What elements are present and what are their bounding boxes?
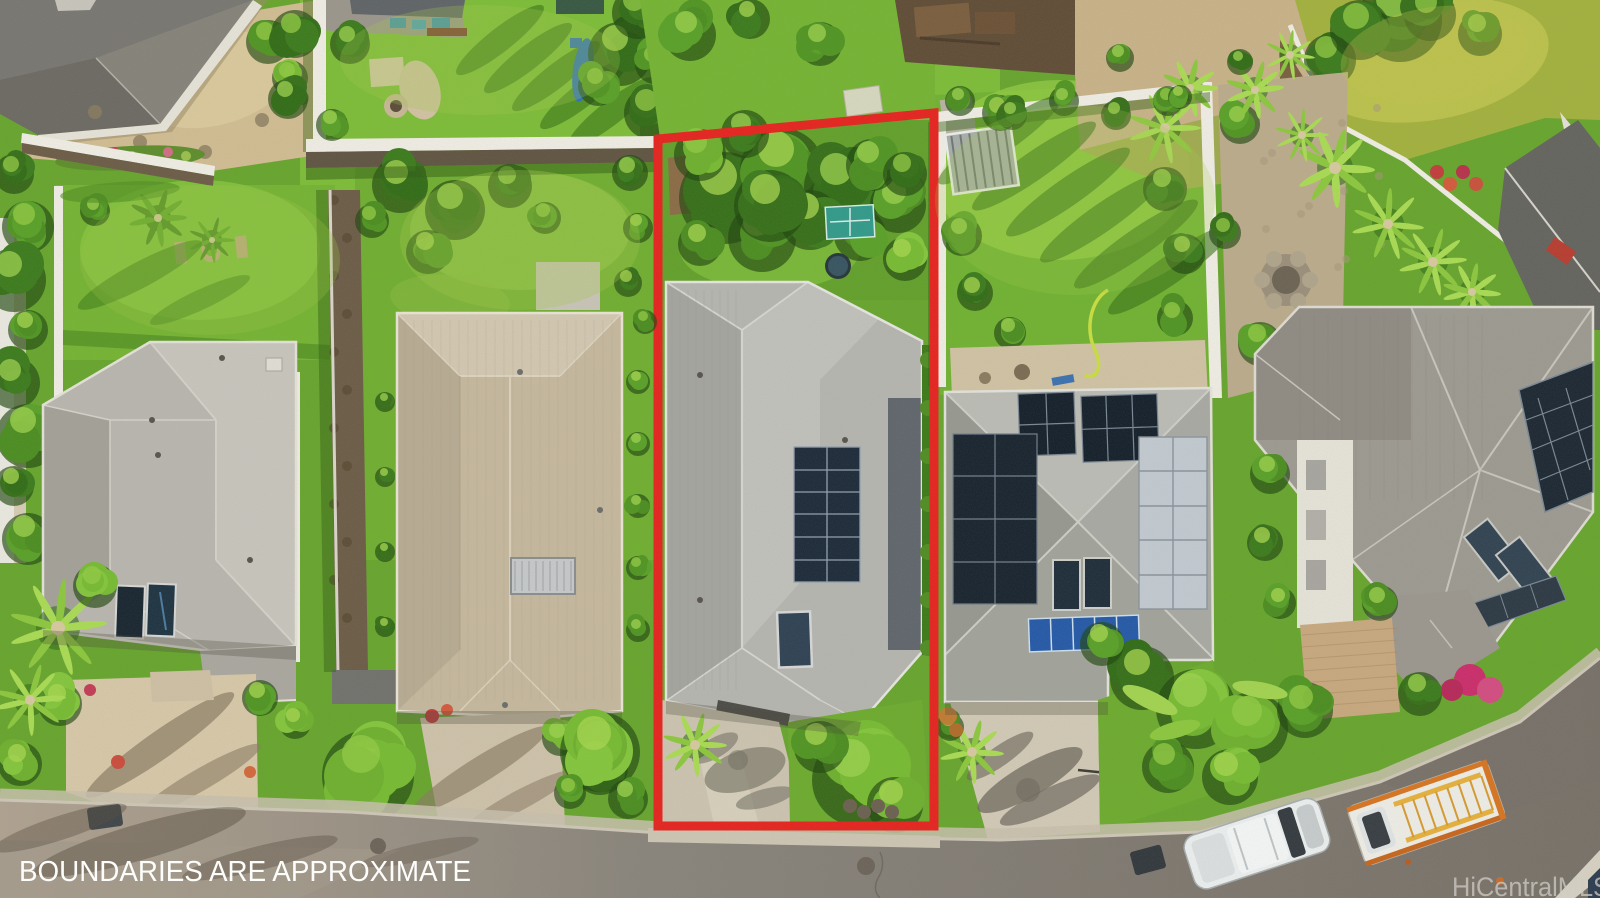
svg-text:HiCentralMLS: HiCentralMLS — [1452, 872, 1600, 898]
svg-text:BOUNDARIES ARE APPROXIMATE: BOUNDARIES ARE APPROXIMATE — [19, 856, 471, 888]
